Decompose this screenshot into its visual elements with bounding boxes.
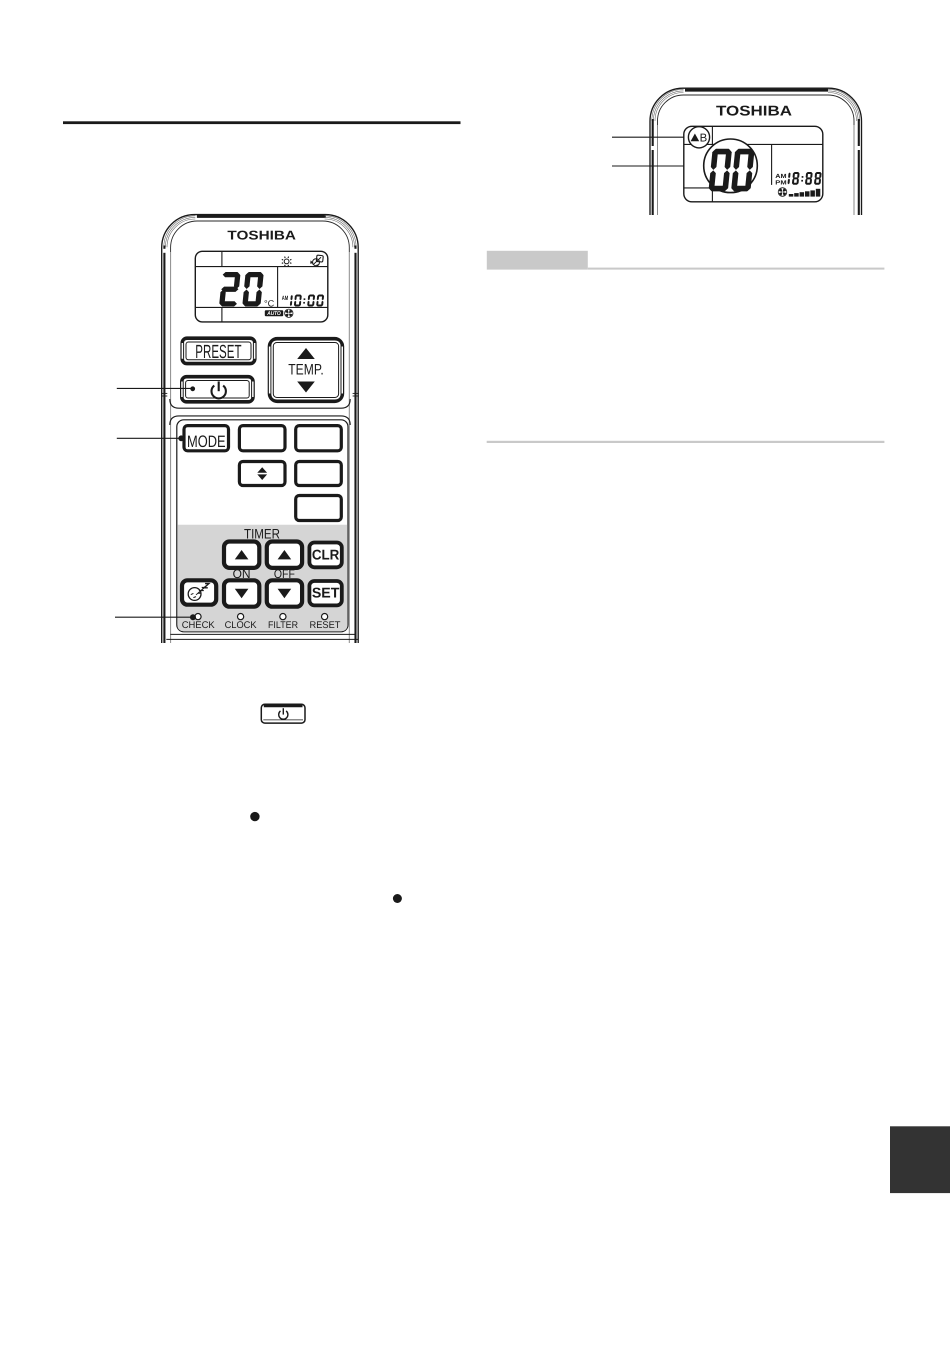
svg-text:TIMER: TIMER	[244, 526, 280, 541]
svg-text:°C: °C	[264, 298, 275, 308]
svg-text:PRESET: PRESET	[195, 342, 241, 363]
svg-text:MODE: MODE	[187, 432, 226, 451]
svg-text:TOSHIBA: TOSHIBA	[716, 104, 792, 120]
svg-text:RESET: RESET	[310, 620, 341, 631]
svg-text:CLOCK: CLOCK	[225, 620, 258, 631]
svg-text:AUTO: AUTO	[266, 311, 281, 317]
svg-text:SET: SET	[312, 586, 340, 602]
svg-text:TEMP.: TEMP.	[288, 362, 323, 379]
svg-text:TOSHIBA: TOSHIBA	[227, 228, 296, 243]
svg-text:PM: PM	[775, 179, 786, 186]
svg-text:AM: AM	[775, 173, 786, 180]
svg-text:B: B	[700, 133, 708, 145]
svg-text:CLR: CLR	[312, 547, 340, 563]
svg-text:CHECK: CHECK	[182, 620, 216, 631]
svg-text:AM: AM	[282, 295, 289, 302]
svg-text:FILTER: FILTER	[268, 620, 298, 631]
